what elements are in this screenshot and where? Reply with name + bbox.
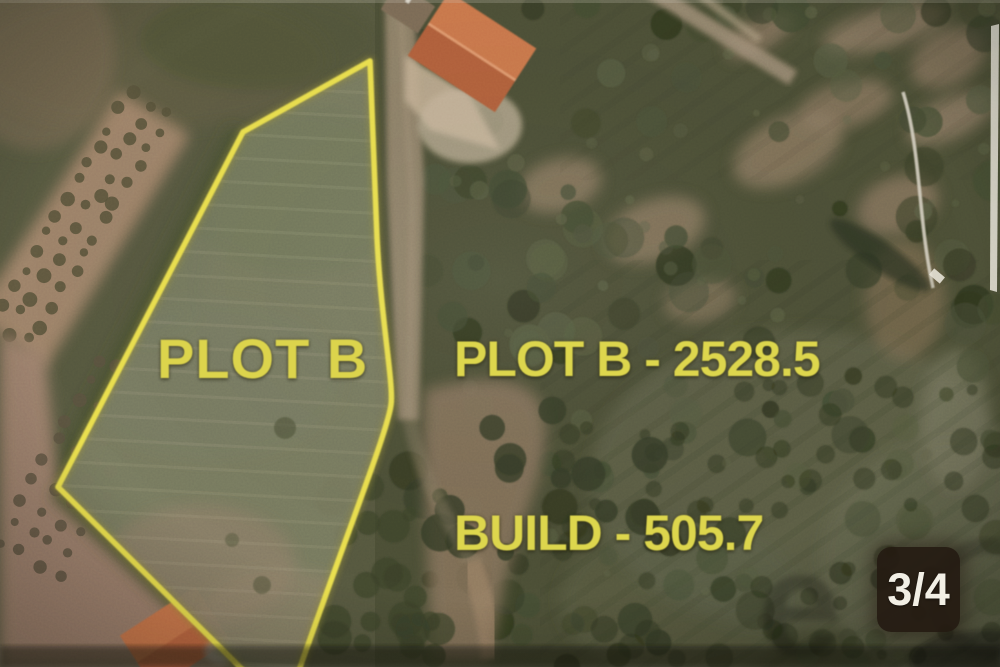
plot-area-line: PLOT B - 2528.5 <box>454 330 820 388</box>
build-area-line: BUILD - 505.7 <box>454 504 820 562</box>
page-indicator-text: 3/4 <box>887 564 950 616</box>
area-annotation: PLOT B - 2528.5 BUILD - 505.7 <box>454 214 820 620</box>
plot-label: PLOT B <box>157 326 368 391</box>
page-indicator-badge: 3/4 <box>877 547 960 632</box>
aerial-photo: e PLOT B PLOT B - 2528.5 BUI <box>0 0 1000 667</box>
